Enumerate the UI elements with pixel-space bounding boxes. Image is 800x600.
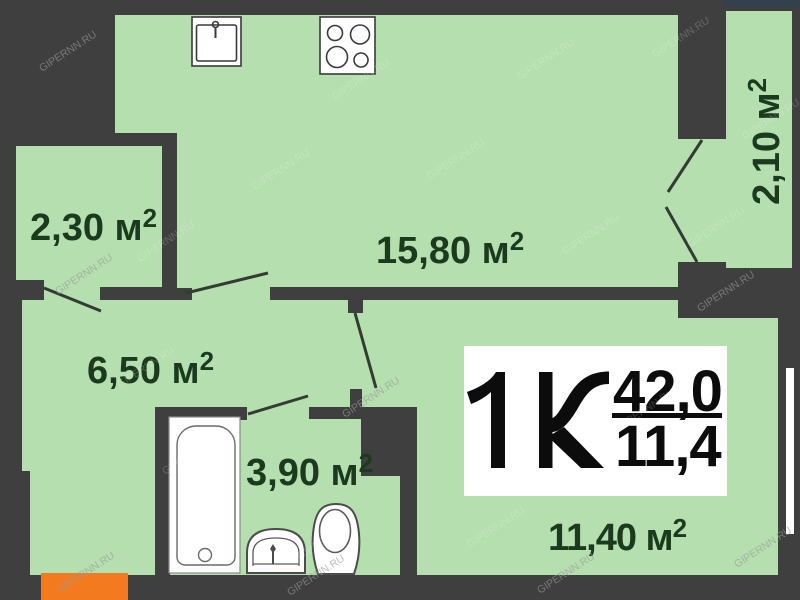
svg-text:3,90 м2: 3,90 м2 [246, 448, 373, 494]
svg-text:15,80 м2: 15,80 м2 [376, 226, 524, 272]
svg-text:2,10 м2: 2,10 м2 [742, 78, 788, 205]
svg-text:2,30 м2: 2,30 м2 [30, 203, 157, 249]
svg-text:11,40 м2: 11,40 м2 [548, 513, 687, 559]
